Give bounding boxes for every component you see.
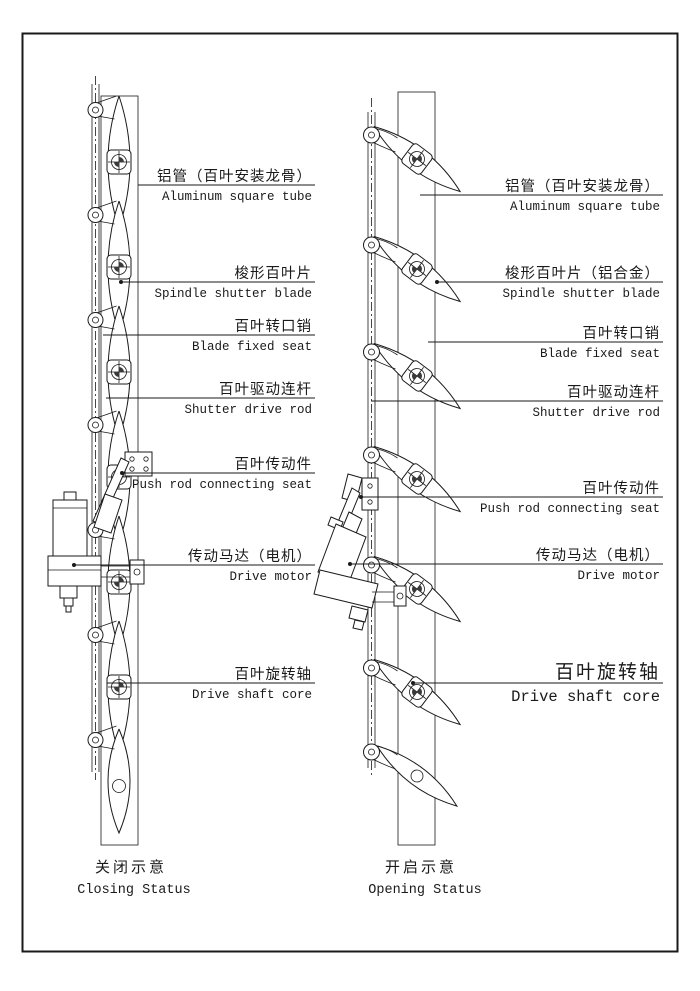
push-rod-connecting-seat [125, 452, 152, 476]
label-fixed-seat-zh: 百叶转口销 [235, 318, 313, 335]
label-aluminum-tube-zh: 铝管（百叶安装龙骨） [505, 178, 660, 195]
label-drive-rod-zh: 百叶驱动连杆 [219, 381, 312, 398]
shutter-blade [367, 650, 468, 734]
label-motor-en: Drive motor [229, 570, 312, 584]
left-labels: 铝管（百叶安装龙骨） Aluminum square tube 梭形百叶片 Sp… [132, 168, 312, 702]
right-labels: 铝管（百叶安装龙骨） Aluminum square tube 梭形百叶片（铝合… [480, 178, 660, 706]
shutter-blade [367, 227, 468, 311]
right-caption-zh: 开启示意 [385, 858, 457, 876]
shutter-blade [108, 729, 130, 833]
label-fixed-seat-zh: 百叶转口销 [583, 325, 661, 342]
label-fixed-seat-en: Blade fixed seat [540, 347, 660, 361]
shutter-blade [367, 437, 468, 521]
label-shaft-core-en: Drive shaft core [511, 688, 660, 706]
right-caption-en: Opening Status [368, 883, 481, 898]
label-drive-rod-zh: 百叶驱动连杆 [567, 384, 660, 401]
label-drive-rod-en: Shutter drive rod [184, 403, 312, 417]
closing-status-figure: 铝管（百叶安装龙骨） Aluminum square tube 梭形百叶片 Sp… [48, 76, 315, 898]
label-connecting-seat-en: Push rod connecting seat [132, 478, 312, 492]
label-blade-zh: 梭形百叶片（铝合金） [505, 264, 660, 282]
label-fixed-seat-en: Blade fixed seat [192, 340, 312, 354]
shutter-blade [367, 117, 468, 201]
label-motor-zh: 传动马达（电机） [188, 548, 312, 565]
label-connecting-seat-zh: 百叶传动件 [235, 456, 313, 473]
shutter-mechanism-diagram: 铝管（百叶安装龙骨） Aluminum square tube 梭形百叶片 Sp… [0, 0, 700, 991]
motor-body [53, 500, 87, 558]
label-aluminum-tube-en: Aluminum square tube [162, 190, 312, 204]
label-blade-zh: 梭形百叶片 [235, 264, 313, 282]
label-aluminum-tube-en: Aluminum square tube [510, 200, 660, 214]
label-connecting-seat-en: Push rod connecting seat [480, 502, 660, 516]
label-connecting-seat-zh: 百叶传动件 [583, 480, 661, 497]
label-aluminum-tube-zh: 铝管（百叶安装龙骨） [157, 168, 312, 185]
label-shaft-core-zh: 百叶旋转轴 [235, 666, 313, 683]
label-blade-en: Spindle shutter blade [502, 287, 660, 301]
shutter-blade [367, 547, 468, 631]
label-drive-rod-en: Shutter drive rod [532, 406, 660, 420]
left-caption-en: Closing Status [77, 883, 190, 898]
push-rod-connecting-seat [362, 478, 378, 510]
label-shaft-core-en: Drive shaft core [192, 688, 312, 702]
label-shaft-core-zh: 百叶旋转轴 [555, 661, 660, 683]
shutter-blade [371, 738, 462, 813]
label-motor-en: Drive motor [577, 569, 660, 583]
left-caption-zh: 关闭示意 [95, 858, 167, 876]
technical-drawing-page: 铝管（百叶安装龙骨） Aluminum square tube 梭形百叶片 Sp… [0, 0, 700, 991]
shutter-blade [367, 334, 468, 418]
open-blade-stack [367, 117, 468, 814]
opening-status-figure: 铝管（百叶安装龙骨） Aluminum square tube 梭形百叶片（铝合… [314, 92, 663, 898]
label-blade-en: Spindle shutter blade [154, 287, 312, 301]
label-motor-zh: 传动马达（电机） [536, 547, 660, 564]
